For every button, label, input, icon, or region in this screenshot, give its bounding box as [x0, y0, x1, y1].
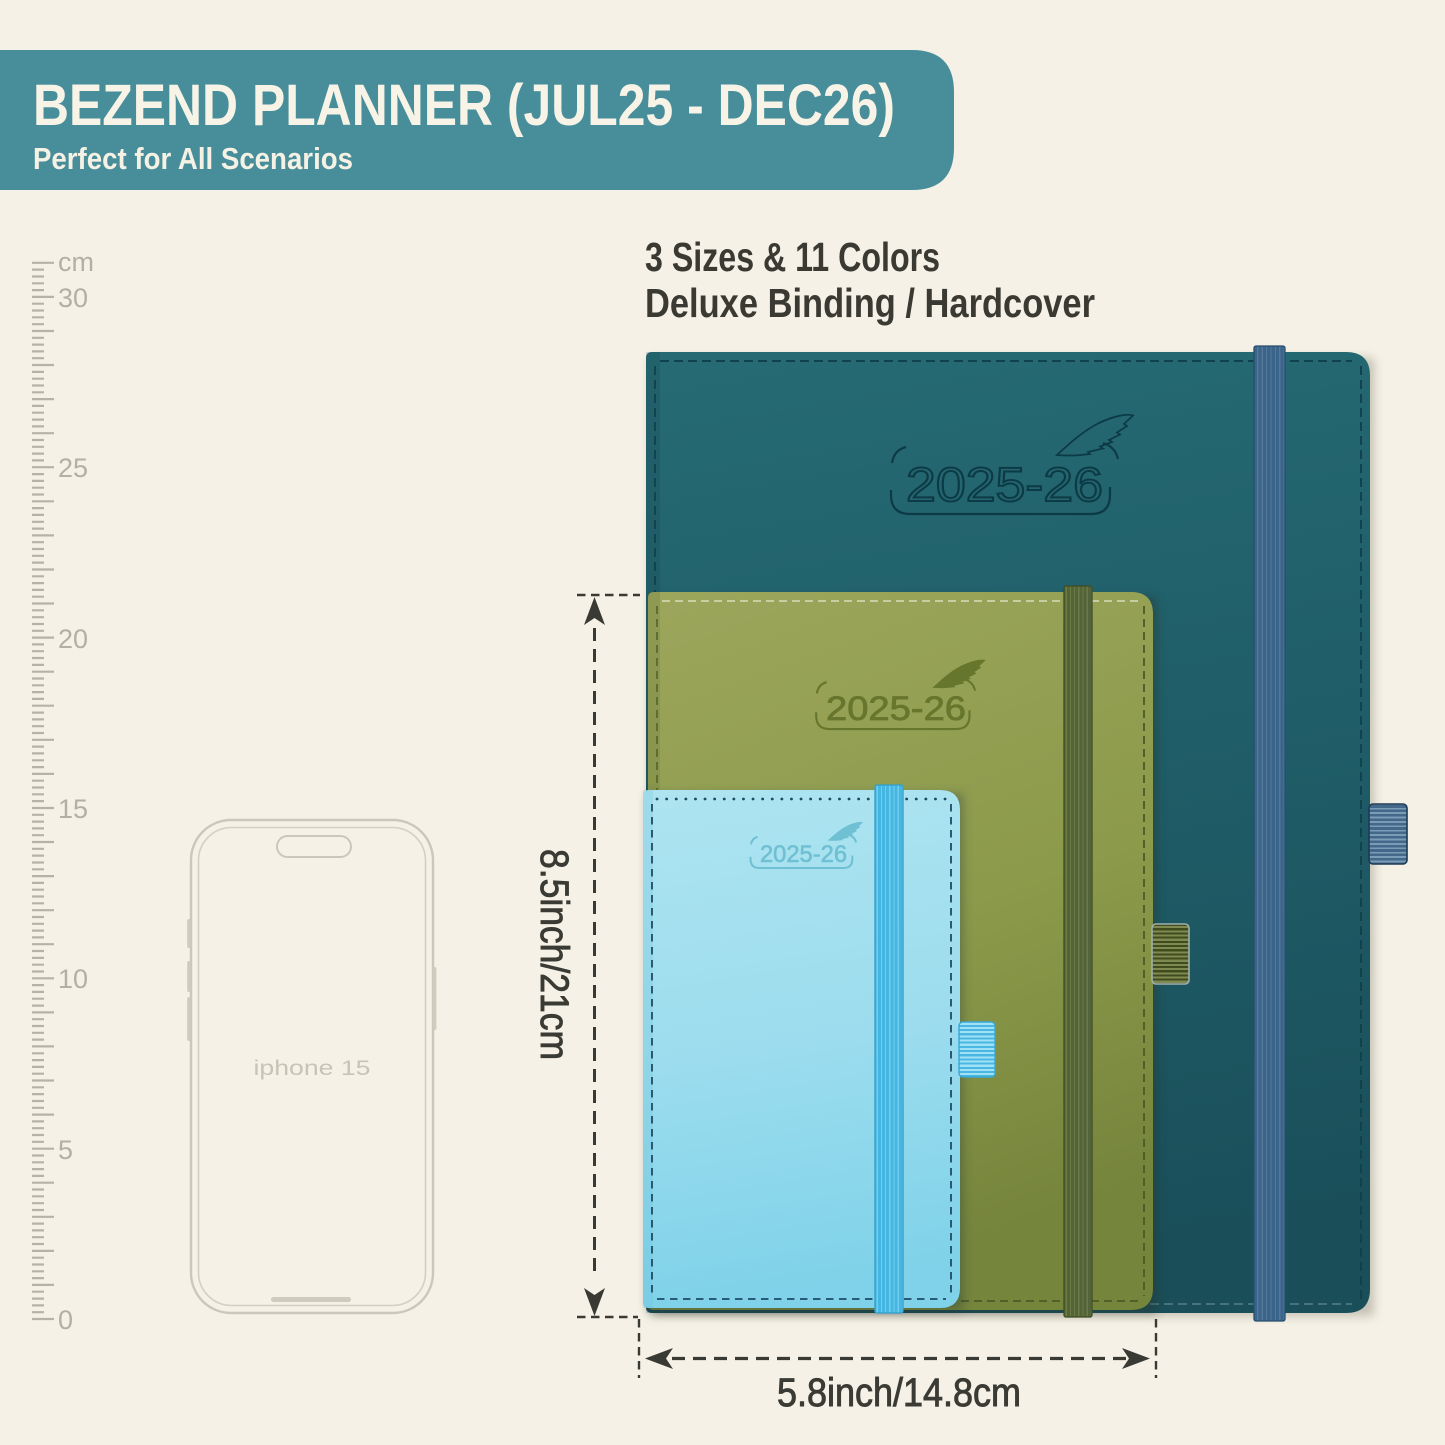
svg-text:2025-26: 2025-26 [760, 841, 847, 868]
svg-text:Perfect for All Scenarios: Perfect for All Scenarios [33, 141, 353, 176]
svg-text:8.5inch/21cm: 8.5inch/21cm [532, 849, 576, 1060]
svg-text:25: 25 [58, 453, 88, 483]
svg-text:20: 20 [58, 624, 88, 654]
svg-text:2025-26: 2025-26 [826, 690, 966, 728]
svg-text:30: 30 [58, 283, 88, 313]
svg-text:2025-26: 2025-26 [906, 459, 1103, 512]
svg-text:3 Sizes & 11 Colors: 3 Sizes & 11 Colors [645, 234, 940, 280]
svg-text:BEZEND PLANNER (JUL25 - DEC26): BEZEND PLANNER (JUL25 - DEC26) [33, 73, 895, 138]
svg-text:Deluxe Binding / Hardcover: Deluxe Binding / Hardcover [645, 280, 1095, 326]
svg-text:5: 5 [58, 1135, 73, 1165]
svg-text:cm: cm [58, 247, 94, 277]
svg-text:0: 0 [58, 1305, 73, 1335]
svg-text:5.8inch/14.8cm: 5.8inch/14.8cm [777, 1371, 1021, 1415]
svg-text:iphone 15: iphone 15 [254, 1056, 371, 1080]
svg-text:10: 10 [58, 964, 88, 994]
svg-text:15: 15 [58, 794, 88, 824]
